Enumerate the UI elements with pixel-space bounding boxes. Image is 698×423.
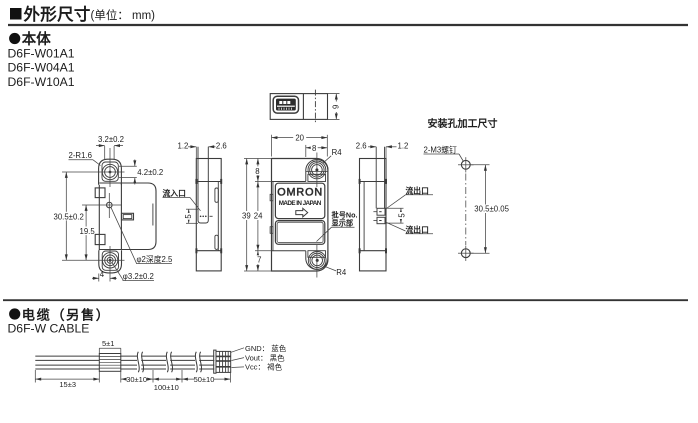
svg-text:7: 7	[257, 256, 261, 265]
svg-text:2.6: 2.6	[216, 142, 227, 151]
svg-text:5±1: 5±1	[102, 339, 114, 348]
svg-text:5: 5	[184, 214, 193, 219]
svg-text:19.5: 19.5	[80, 227, 96, 236]
svg-text:4.2±0.2: 4.2±0.2	[137, 168, 163, 177]
svg-text:1.2: 1.2	[398, 142, 409, 151]
svg-text:100±10: 100±10	[154, 383, 179, 392]
svg-text:外形尺寸: 外形尺寸	[24, 4, 91, 24]
svg-text:OMRON: OMRON	[277, 187, 323, 199]
svg-text:R4: R4	[336, 268, 347, 277]
svg-text:φ3.2±0.2: φ3.2±0.2	[123, 272, 154, 281]
svg-text:30.5±0.05: 30.5±0.05	[474, 205, 509, 214]
svg-text:流出口: 流出口	[406, 224, 429, 234]
svg-text:30.5±0.2: 30.5±0.2	[54, 213, 84, 222]
svg-text:安装孔加工尺寸: 安装孔加工尺寸	[428, 117, 498, 130]
svg-text:GND： 蓝色: GND： 蓝色	[245, 343, 287, 353]
svg-text:24: 24	[254, 212, 263, 221]
svg-text:8: 8	[312, 144, 316, 153]
svg-text:流入口: 流入口	[163, 188, 186, 198]
svg-text:2-M3螺钉: 2-M3螺钉	[424, 145, 458, 155]
svg-text:φ2深度2.5: φ2深度2.5	[137, 254, 173, 264]
svg-text:30±10: 30±10	[126, 375, 147, 384]
svg-text:流出口: 流出口	[406, 185, 429, 195]
svg-text:MADE IN JAPAN: MADE IN JAPAN	[279, 200, 322, 207]
svg-text:电缆（另售）: 电缆（另售）	[22, 306, 111, 322]
svg-text:R4: R4	[332, 148, 343, 157]
svg-text:D6F-W01A1: D6F-W01A1	[8, 47, 75, 61]
svg-text:显示部: 显示部	[332, 218, 354, 227]
svg-text:D6F-W CABLE: D6F-W CABLE	[8, 322, 90, 336]
svg-text:8: 8	[255, 167, 259, 176]
svg-text:9: 9	[331, 105, 340, 109]
svg-text:Vout： 黑色: Vout： 黑色	[245, 352, 285, 362]
svg-text:Vcc： 褐色: Vcc： 褐色	[245, 362, 283, 372]
svg-text:2-R1.6: 2-R1.6	[69, 151, 92, 160]
svg-text:4: 4	[100, 270, 105, 279]
svg-text:5: 5	[397, 213, 406, 218]
svg-text:3.2±0.2: 3.2±0.2	[98, 135, 124, 144]
svg-text:15±3: 15±3	[59, 380, 76, 389]
svg-text:20: 20	[295, 134, 304, 143]
svg-text:2.6: 2.6	[356, 142, 367, 151]
svg-text:50±10: 50±10	[194, 375, 215, 384]
svg-text:1.2: 1.2	[178, 142, 189, 151]
svg-text:39: 39	[242, 212, 251, 221]
svg-text:(单位： mm): (单位： mm)	[91, 8, 156, 22]
svg-text:本体: 本体	[22, 30, 51, 48]
svg-text:D6F-W10A1: D6F-W10A1	[8, 75, 75, 89]
svg-text:D6F-W04A1: D6F-W04A1	[8, 61, 75, 75]
